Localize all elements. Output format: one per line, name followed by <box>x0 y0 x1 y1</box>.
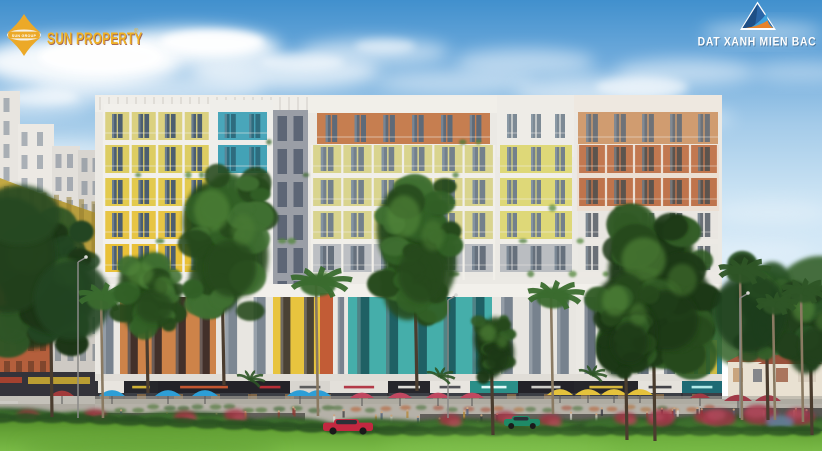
svg-text:SUN PROPERTY: SUN PROPERTY <box>47 30 143 49</box>
svg-text:SUN GROUP: SUN GROUP <box>12 34 37 38</box>
svg-text:DAT XANH MIEN BAC: DAT XANH MIEN BAC <box>698 36 817 49</box>
svg-text:®: ® <box>134 28 139 35</box>
